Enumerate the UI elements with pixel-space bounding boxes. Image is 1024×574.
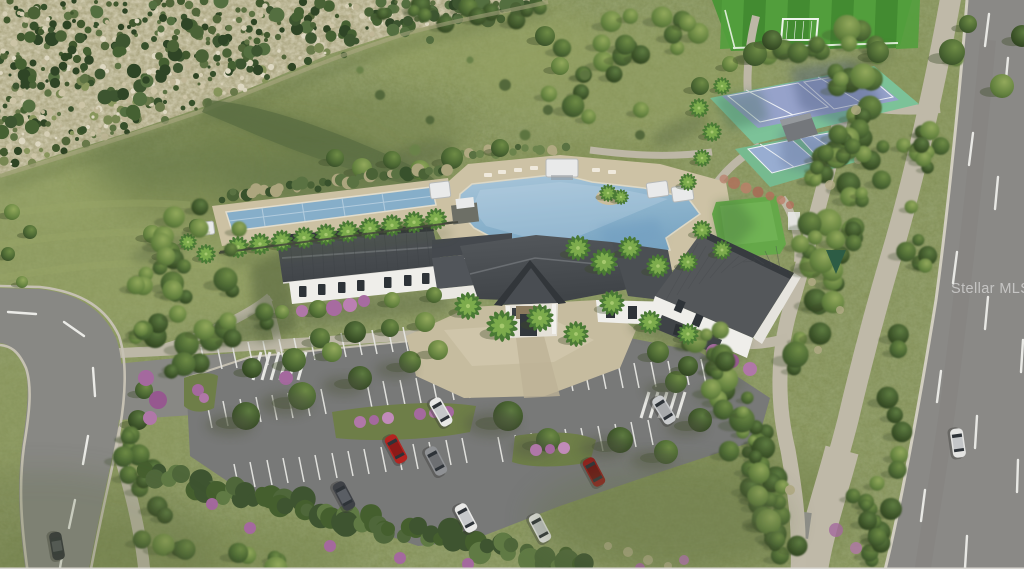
svg-text:Stellar MLS: Stellar MLS [951,281,1024,297]
